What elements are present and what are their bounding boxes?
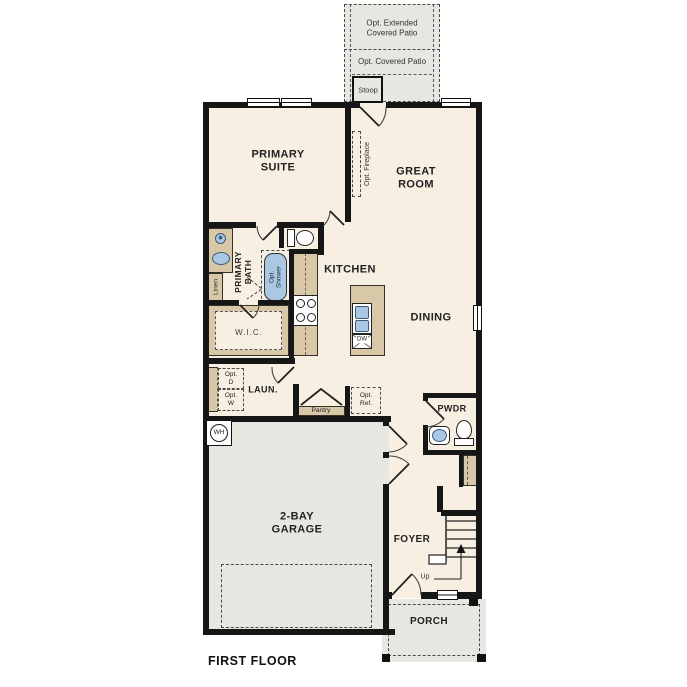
toilet-tank	[454, 438, 474, 446]
covered-patio-label: Opt. Covered Patio	[358, 57, 426, 67]
window	[281, 98, 312, 107]
patio-inner-line-right	[433, 4, 434, 102]
porch-post	[477, 654, 486, 662]
burner	[296, 299, 305, 308]
sink-basin	[355, 320, 369, 332]
wall-segment	[279, 228, 284, 248]
pwdr-label: PWDR	[437, 404, 466, 415]
wall-segment	[203, 629, 395, 635]
opt-washer-label: Opt. W	[225, 392, 237, 408]
toilet-bowl	[296, 230, 314, 246]
page-title: FIRST FLOOR	[208, 654, 297, 668]
laundry-counter-strip	[208, 367, 218, 412]
opt-second-sink-icon	[215, 233, 226, 244]
wall-segment	[258, 300, 289, 305]
wall-segment	[294, 249, 324, 254]
wall-segment	[459, 453, 463, 487]
wic-label: W.I.C.	[235, 328, 263, 338]
wall-segment	[383, 452, 389, 458]
wall-segment	[203, 102, 209, 635]
wall-segment	[383, 484, 389, 635]
wall-segment	[289, 249, 294, 358]
pantry-label: Pantry	[312, 407, 331, 415]
porch-post	[469, 598, 478, 606]
wall-segment	[345, 386, 350, 416]
wall-segment	[441, 510, 482, 516]
floor-plan: Opt. Extended Covered Patio Opt. Covered…	[0, 0, 687, 687]
garage-door-outline	[221, 564, 372, 628]
porch-edge-line	[388, 604, 480, 656]
dining-label: DINING	[411, 311, 452, 324]
opt-fireplace-label: Opt. Fireplace	[364, 142, 372, 186]
wall-segment	[437, 486, 443, 512]
burner	[307, 299, 316, 308]
water-heater-label: WH	[214, 429, 225, 437]
wall-segment	[423, 450, 482, 455]
vanity-sink	[212, 252, 230, 265]
patio-slab-line	[352, 74, 432, 75]
garage-label: 2-BAY GARAGE	[272, 511, 323, 538]
porch-post	[382, 654, 390, 662]
primary-suite-label: PRIMARY SUITE	[251, 149, 304, 176]
closet-rod-line	[467, 456, 468, 485]
great-room-label: GREAT ROOM	[396, 166, 436, 193]
dishwasher-label: DW	[356, 336, 368, 343]
burner	[307, 313, 316, 322]
wall-segment	[208, 300, 239, 305]
window	[247, 98, 280, 107]
stairs-up-label: Up	[421, 574, 430, 583]
wall-segment	[345, 102, 351, 222]
porch-label: PORCH	[410, 616, 448, 628]
window	[441, 98, 471, 107]
kitchen-label: KITCHEN	[324, 263, 376, 276]
patio-divider-line	[344, 49, 440, 50]
window	[437, 590, 458, 600]
wall-segment	[277, 222, 324, 228]
toilet-bowl	[456, 420, 472, 439]
wall-segment	[293, 384, 299, 416]
opt-dryer-label: Opt. D	[225, 371, 237, 387]
ext-patio-label: Opt. Extended Covered Patio	[366, 18, 417, 38]
pwdr-sink	[432, 429, 447, 442]
wall-segment	[423, 393, 428, 401]
foyer-label: FOYER	[394, 534, 430, 546]
wall-segment	[423, 393, 482, 398]
opt-fireplace-outline	[352, 131, 361, 197]
patio-inner-line-left	[350, 4, 351, 102]
opt-shower-label: Opt. Shower	[269, 266, 284, 288]
laundry-label: LAUN.	[248, 385, 278, 396]
linen-label: Linen	[212, 279, 219, 295]
stoop-label: Stoop	[358, 85, 378, 94]
wall-segment	[383, 592, 392, 599]
wall-segment	[203, 222, 256, 228]
burner	[296, 313, 305, 322]
primary-bath-label: PRIMARY BATH	[234, 251, 254, 293]
sink-basin	[355, 306, 369, 319]
wall-segment	[203, 358, 295, 364]
opt-ref-label: Opt. Ref.	[360, 392, 372, 408]
wall-segment	[476, 102, 482, 599]
toilet-tank	[287, 229, 295, 247]
window	[473, 305, 482, 331]
